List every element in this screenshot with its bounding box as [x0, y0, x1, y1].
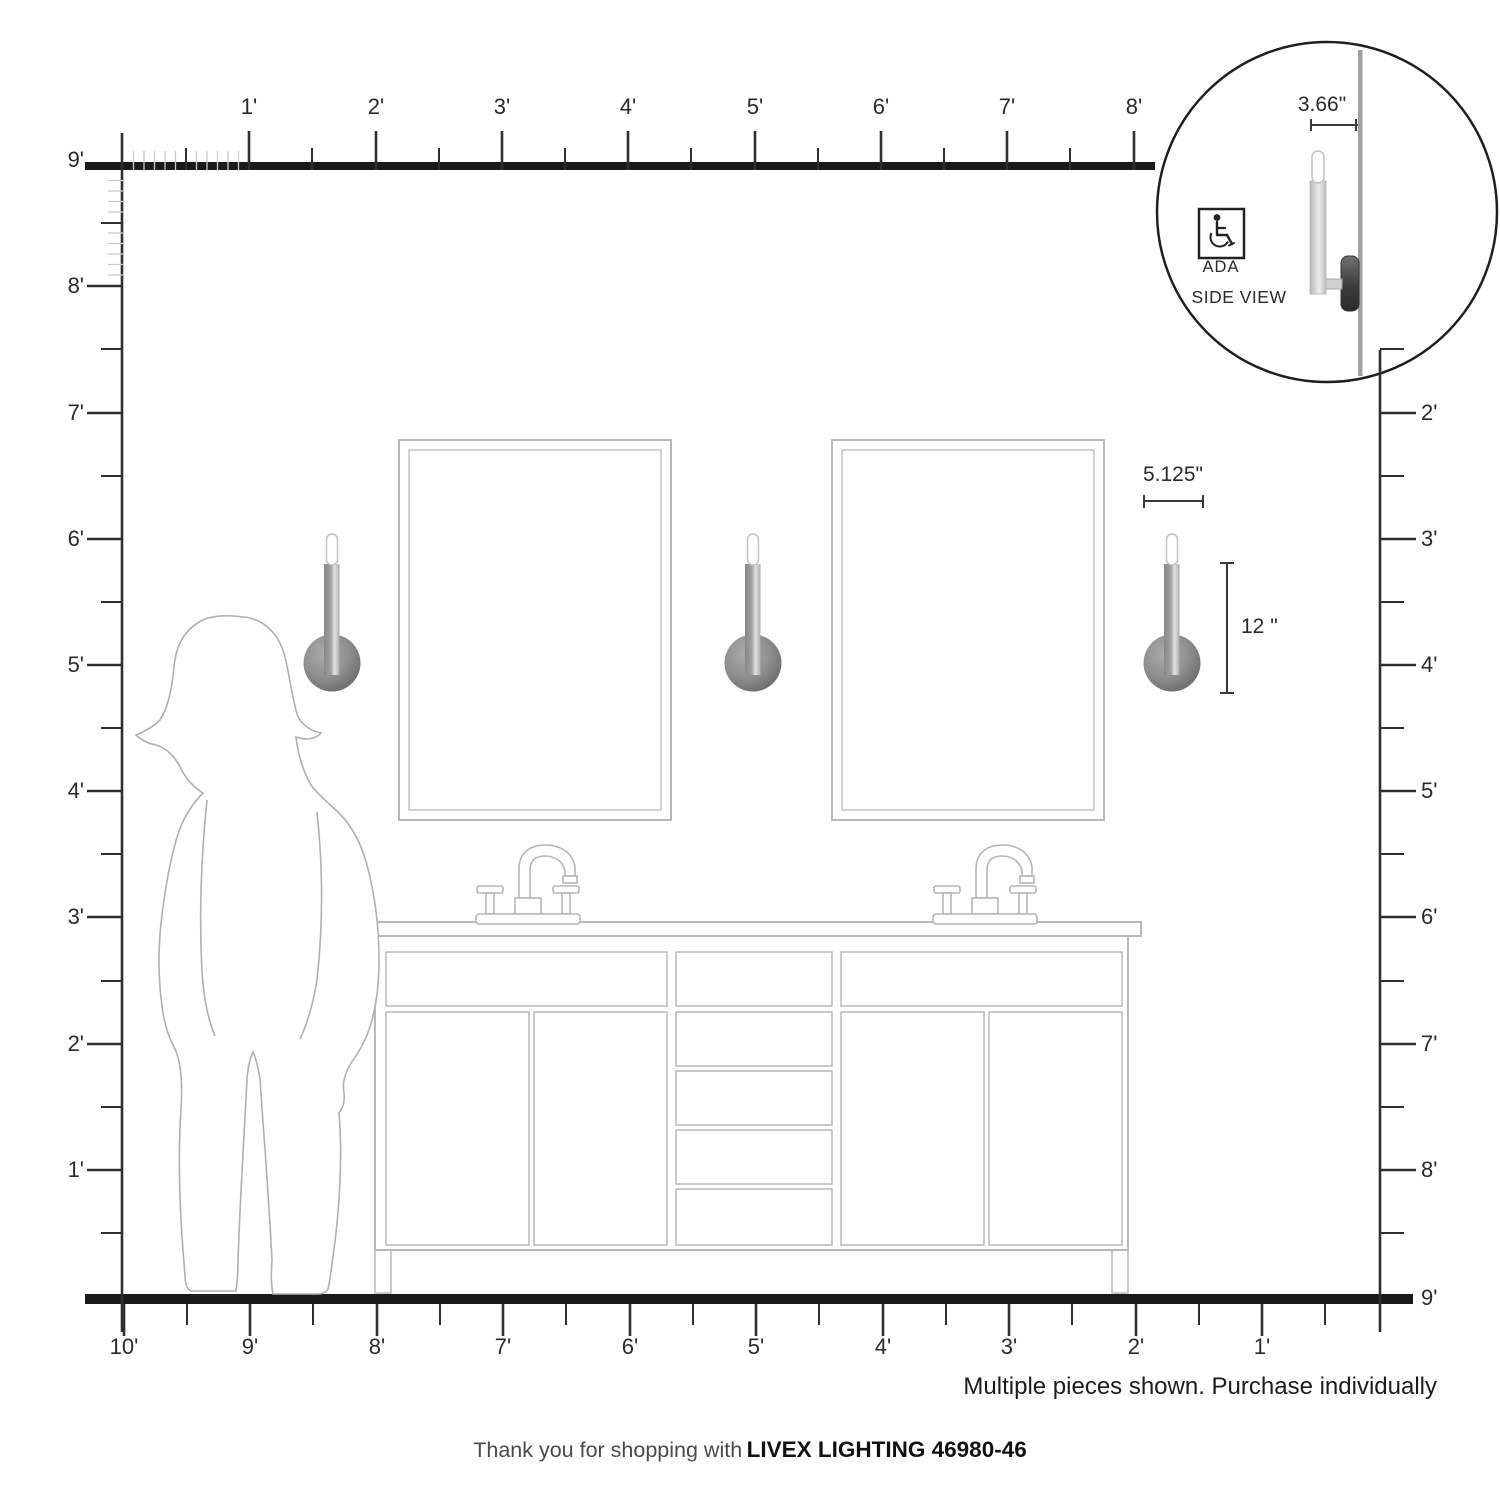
mirror-left — [399, 440, 671, 820]
sconce-left — [304, 534, 361, 692]
sconce-bulb — [327, 534, 338, 565]
vanity-cabinet — [367, 922, 1141, 1293]
product-dimension-diagram: 1'2'3'4'5'6'7'8'9'8'7'6'5'4'3'2'1'2'3'4'… — [0, 0, 1500, 1500]
height-dimension-line — [1220, 563, 1234, 693]
sconce-center — [725, 534, 782, 692]
left-wall-line — [121, 133, 124, 1332]
right-wall-line — [1379, 350, 1382, 1332]
vanity-leg — [375, 1250, 391, 1293]
width-dimension-line — [1144, 495, 1203, 508]
mirror-right — [832, 440, 1104, 820]
vanity-leg — [1112, 1250, 1128, 1293]
diagram-line-art — [0, 0, 1500, 1500]
faucet-right — [933, 845, 1037, 924]
scale-figure-woman — [136, 616, 379, 1294]
left-ruler-minor-ticks — [101, 223, 123, 1233]
sconce-bulb — [748, 534, 759, 565]
sconce-bulb — [1167, 534, 1178, 565]
side-view-inset-circle — [1157, 42, 1497, 382]
sconce-right — [1144, 534, 1201, 692]
right-ruler-ticks — [1380, 413, 1416, 1170]
inset-wall-line — [1358, 50, 1363, 376]
floor-line — [85, 1294, 1413, 1304]
sconce-bulb — [1312, 151, 1324, 183]
ceiling-line — [85, 162, 1155, 170]
faucet-left — [476, 845, 580, 924]
